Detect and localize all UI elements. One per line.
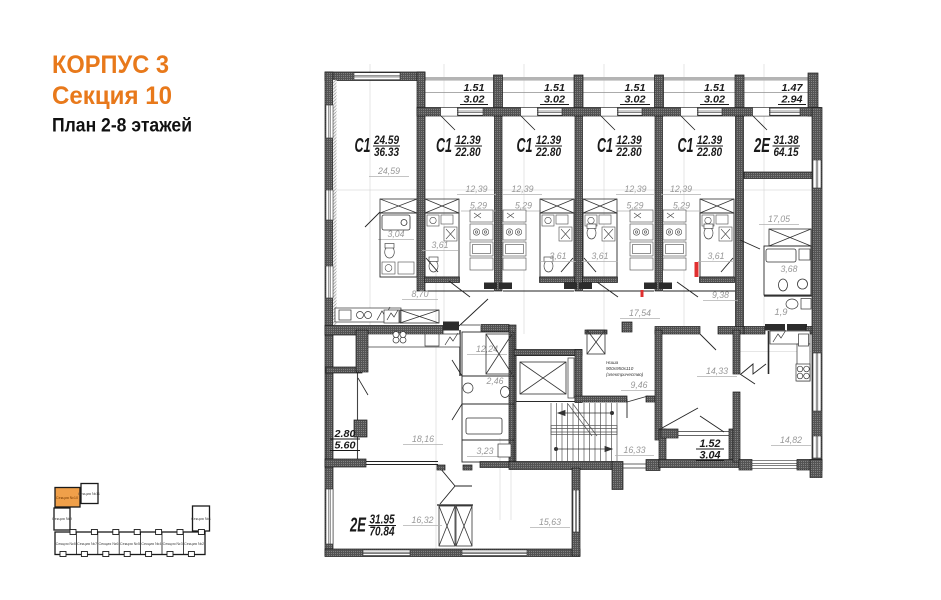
- svg-text:3,68: 3,68: [781, 264, 799, 275]
- svg-text:14,33: 14,33: [706, 366, 729, 377]
- svg-text:3,61: 3,61: [592, 251, 609, 262]
- svg-text:3.04: 3.04: [700, 450, 721, 462]
- svg-text:С1: С1: [355, 135, 371, 157]
- svg-text:С1: С1: [436, 135, 452, 157]
- svg-text:36.33: 36.33: [374, 145, 399, 159]
- svg-text:24,59: 24,59: [377, 166, 401, 177]
- svg-text:12,39: 12,39: [670, 184, 693, 195]
- svg-text:3.02: 3.02: [625, 94, 646, 106]
- svg-text:9,38: 9,38: [712, 290, 730, 301]
- svg-text:3,04: 3,04: [388, 229, 405, 240]
- svg-text:3,61: 3,61: [708, 251, 725, 262]
- svg-text:2,46: 2,46: [486, 376, 505, 387]
- svg-text:1.51: 1.51: [464, 82, 485, 94]
- svg-text:12,24: 12,24: [476, 344, 498, 355]
- svg-text:3,23: 3,23: [477, 446, 495, 457]
- svg-text:12,39: 12,39: [466, 184, 489, 195]
- svg-text:Секция №2: Секция №2: [184, 542, 204, 546]
- svg-text:3,61: 3,61: [432, 240, 449, 251]
- svg-text:Секция №11: Секция №11: [78, 492, 100, 496]
- svg-text:22.80: 22.80: [696, 145, 722, 159]
- svg-text:3.02: 3.02: [704, 94, 725, 106]
- svg-text:15,63: 15,63: [539, 517, 562, 528]
- svg-text:22.80: 22.80: [455, 145, 481, 159]
- svg-text:1,9: 1,9: [775, 307, 789, 318]
- svg-text:14,82: 14,82: [780, 435, 803, 446]
- svg-text:(электричество): (электричество): [606, 372, 644, 377]
- svg-text:С1: С1: [517, 135, 533, 157]
- svg-text:12,39: 12,39: [512, 184, 535, 195]
- svg-text:22.80: 22.80: [535, 145, 561, 159]
- svg-text:С1: С1: [597, 135, 613, 157]
- svg-text:9,46: 9,46: [631, 380, 649, 391]
- svg-text:8,70: 8,70: [412, 289, 430, 300]
- svg-text:1.51: 1.51: [544, 82, 565, 94]
- svg-text:5.60: 5.60: [335, 440, 356, 452]
- svg-text:Секция №5: Секция №5: [120, 542, 140, 546]
- svg-text:2Е: 2Е: [349, 515, 366, 537]
- svg-text:1.51: 1.51: [704, 82, 725, 94]
- svg-text:Секция №6: Секция №6: [98, 542, 118, 546]
- svg-text:Секция №9: Секция №9: [52, 517, 72, 521]
- svg-text:Секция №4: Секция №4: [141, 542, 161, 546]
- svg-text:Секция №3: Секция №3: [163, 542, 183, 546]
- svg-text:1.47: 1.47: [782, 82, 804, 94]
- svg-text:16,33: 16,33: [624, 445, 647, 456]
- svg-text:22.80: 22.80: [616, 145, 642, 159]
- svg-text:900х950х110: 900х950х110: [606, 366, 634, 371]
- svg-text:3.02: 3.02: [464, 94, 485, 106]
- svg-text:3,61: 3,61: [550, 251, 567, 262]
- svg-text:1.51: 1.51: [625, 82, 646, 94]
- svg-text:64.15: 64.15: [774, 145, 799, 159]
- svg-text:План 2-8 этажей: План 2-8 этажей: [52, 116, 192, 137]
- svg-text:2.94: 2.94: [780, 94, 802, 106]
- svg-text:70.84: 70.84: [370, 525, 395, 539]
- svg-text:3.02: 3.02: [544, 94, 565, 106]
- svg-text:1.52: 1.52: [700, 438, 721, 450]
- svg-text:КОРПУС 3: КОРПУС 3: [52, 51, 169, 79]
- svg-text:Секция №8: Секция №8: [56, 542, 76, 546]
- svg-text:Секция 10: Секция 10: [52, 82, 172, 110]
- svg-text:С1: С1: [678, 135, 694, 157]
- svg-text:17,54: 17,54: [629, 308, 651, 319]
- svg-text:2.80: 2.80: [333, 428, 355, 440]
- svg-text:Секция №1: Секция №1: [191, 517, 211, 521]
- svg-text:Секция №10: Секция №10: [56, 496, 78, 500]
- svg-text:18,16: 18,16: [412, 434, 435, 445]
- svg-text:17,05: 17,05: [768, 214, 791, 225]
- svg-text:Ниша: Ниша: [606, 360, 619, 365]
- svg-text:2Е: 2Е: [753, 135, 770, 157]
- svg-text:Секция №7: Секция №7: [77, 542, 97, 546]
- svg-text:12,39: 12,39: [625, 184, 648, 195]
- svg-text:16,32: 16,32: [412, 515, 435, 526]
